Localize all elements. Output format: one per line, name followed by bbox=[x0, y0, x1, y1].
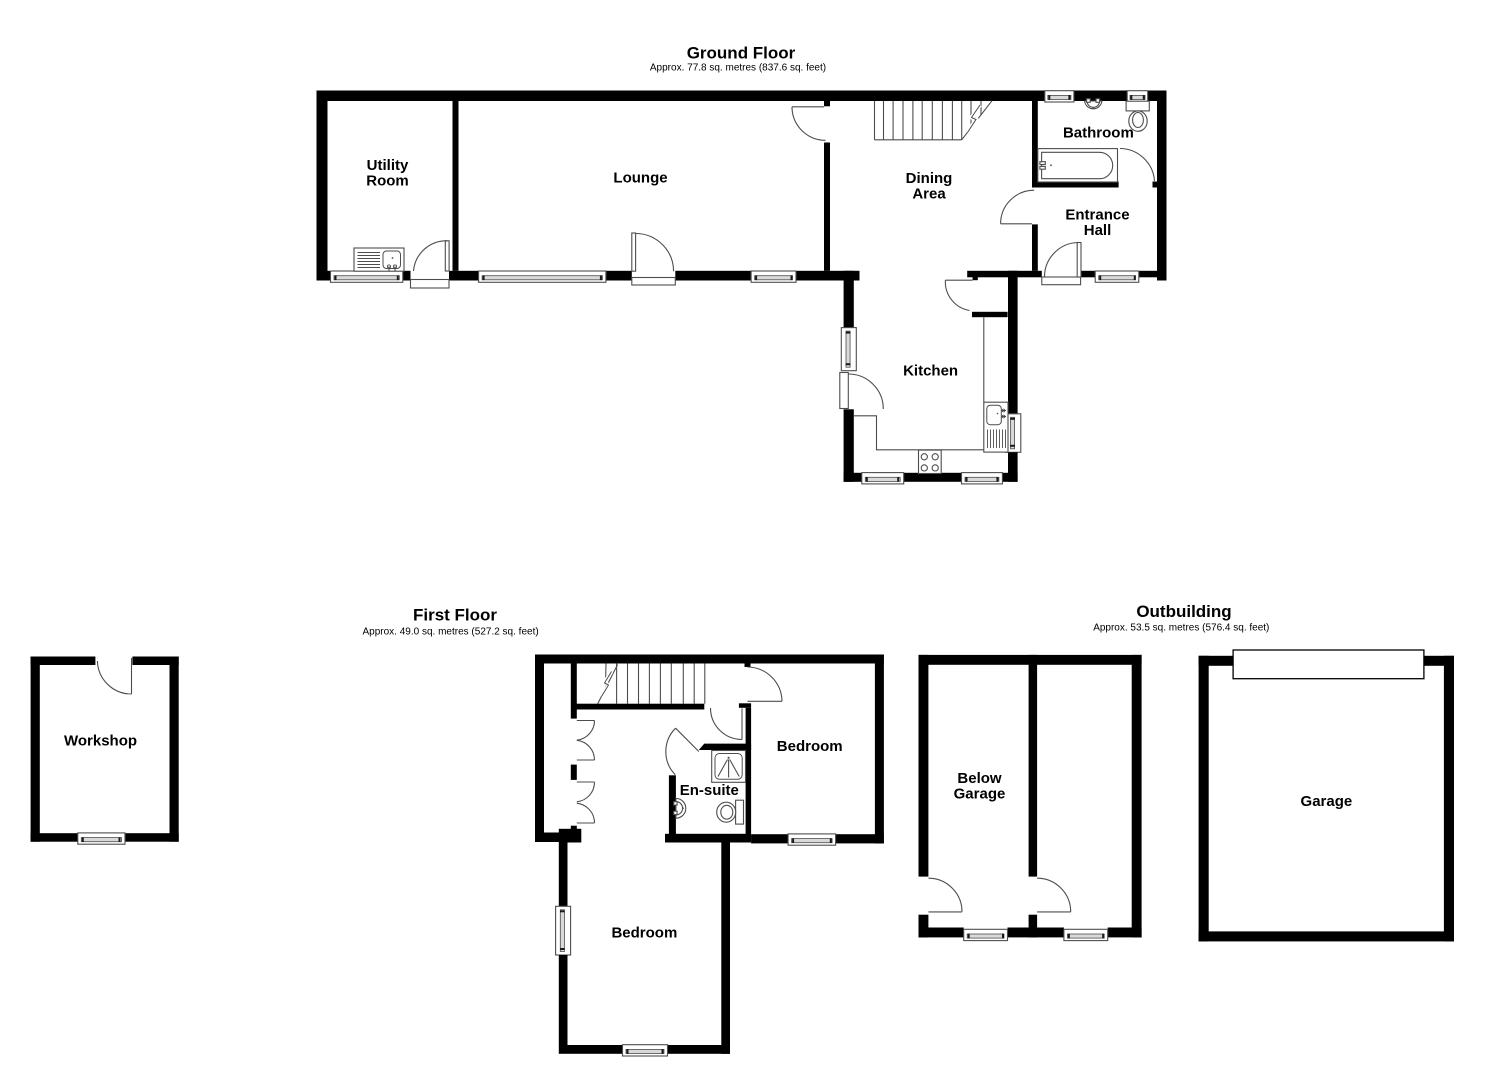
svg-text:Hall: Hall bbox=[1084, 222, 1112, 239]
svg-text:Garage: Garage bbox=[1301, 793, 1353, 810]
svg-text:Approx. 77.8 sq. metres (837.6: Approx. 77.8 sq. metres (837.6 sq. feet) bbox=[650, 63, 826, 74]
svg-text:Workshop: Workshop bbox=[64, 733, 137, 750]
svg-text:Ground Floor: Ground Floor bbox=[687, 44, 796, 63]
svg-text:Bedroom: Bedroom bbox=[777, 738, 843, 755]
svg-text:Lounge: Lounge bbox=[613, 170, 667, 187]
svg-text:Approx. 49.0 sq. metres (527.2: Approx. 49.0 sq. metres (527.2 sq. feet) bbox=[362, 627, 538, 638]
svg-text:Outbuilding: Outbuilding bbox=[1136, 602, 1231, 621]
svg-text:Area: Area bbox=[912, 185, 946, 202]
svg-text:Room: Room bbox=[366, 172, 409, 189]
svg-text:Approx. 53.5 sq. metres (576.4: Approx. 53.5 sq. metres (576.4 sq. feet) bbox=[1093, 623, 1269, 634]
svg-text:First Floor: First Floor bbox=[413, 606, 497, 625]
svg-text:En-suite: En-suite bbox=[680, 782, 739, 799]
svg-text:Kitchen: Kitchen bbox=[903, 363, 958, 380]
svg-text:Garage: Garage bbox=[954, 785, 1006, 802]
svg-text:Bathroom: Bathroom bbox=[1063, 125, 1134, 142]
svg-text:Bedroom: Bedroom bbox=[611, 925, 677, 942]
